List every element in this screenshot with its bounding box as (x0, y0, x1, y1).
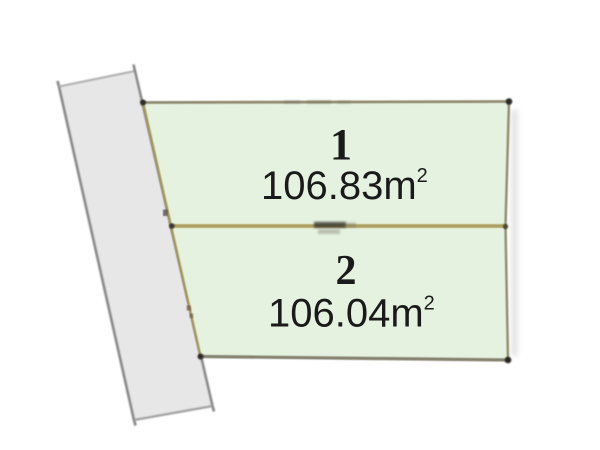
svg-text:106.83m2: 106.83m2 (261, 164, 428, 208)
svg-text:106.04m2: 106.04m2 (268, 292, 435, 336)
svg-text:2: 2 (336, 248, 357, 294)
svg-text:1: 1 (330, 120, 352, 169)
